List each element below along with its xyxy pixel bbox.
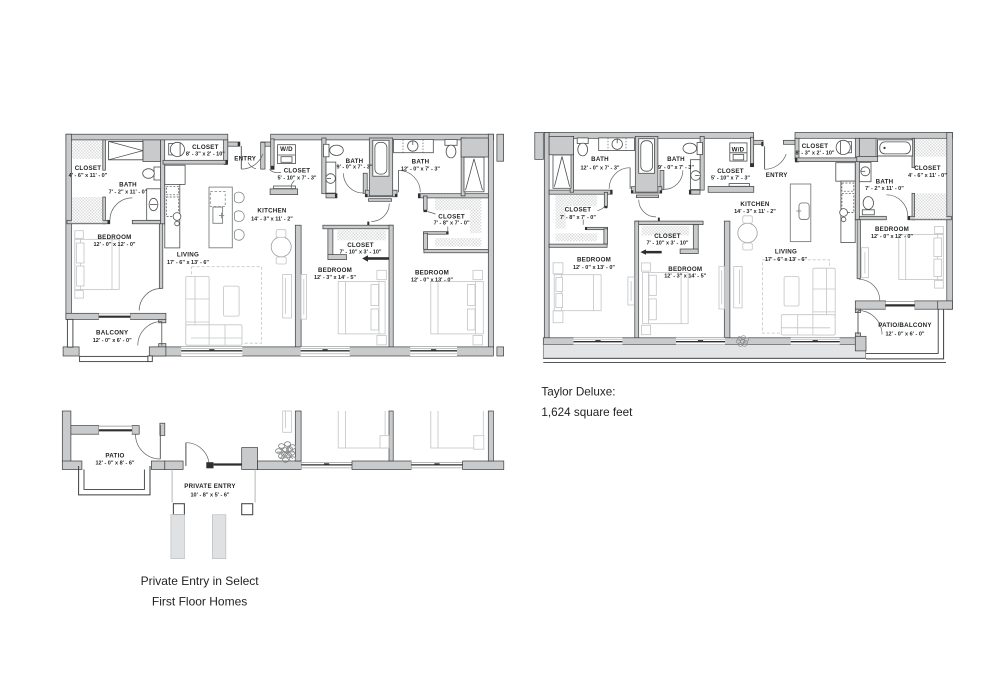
svg-text:BEDROOM: BEDROOM	[415, 269, 449, 276]
svg-text:KITCHEN: KITCHEN	[257, 208, 287, 215]
svg-text:BEDROOM: BEDROOM	[97, 234, 131, 241]
svg-text:PATIO: PATIO	[105, 453, 124, 460]
svg-text:8' - 3" x 2' - 10": 8' - 3" x 2' - 10"	[186, 152, 225, 158]
svg-text:7' - 8" x 7' - 0": 7' - 8" x 7' - 0"	[560, 215, 596, 221]
svg-text:1,624 square feet: 1,624 square feet	[541, 406, 633, 419]
svg-text:CLOSET: CLOSET	[192, 144, 219, 151]
svg-text:4' - 6" x 11' - 0": 4' - 6" x 11' - 0"	[908, 173, 947, 179]
svg-text:12' - 0" x 12' - 0": 12' - 0" x 12' - 0"	[93, 242, 135, 248]
svg-text:BALCONY: BALCONY	[96, 330, 129, 337]
svg-text:CLOSET: CLOSET	[654, 233, 681, 240]
svg-text:12' - 0" x 12' - 0": 12' - 0" x 12' - 0"	[871, 234, 913, 240]
svg-text:12' - 3" x 14' - 5": 12' - 3" x 14' - 5"	[664, 274, 706, 280]
svg-text:Private Entry in Select: Private Entry in Select	[141, 574, 260, 588]
svg-text:12' - 0" x 6' - 0": 12' - 0" x 6' - 0"	[885, 332, 924, 338]
svg-text:BATH: BATH	[876, 179, 894, 186]
svg-text:7' - 2" x 11' - 0": 7' - 2" x 11' - 0"	[865, 186, 904, 192]
svg-text:CLOSET: CLOSET	[284, 168, 311, 175]
svg-text:5' - 10" x 7' - 3": 5' - 10" x 7' - 3"	[711, 176, 750, 182]
svg-text:5' - 10" x 7' - 3": 5' - 10" x 7' - 3"	[277, 175, 316, 181]
svg-text:First Floor Homes: First Floor Homes	[152, 595, 247, 609]
svg-text:CLOSET: CLOSET	[565, 207, 592, 214]
svg-text:BATH: BATH	[119, 182, 137, 189]
svg-text:BEDROOM: BEDROOM	[668, 266, 702, 273]
svg-text:PATIO/BALCONY: PATIO/BALCONY	[878, 322, 932, 329]
svg-text:14' - 3" x 11' - 2": 14' - 3" x 11' - 2"	[734, 209, 776, 215]
svg-text:7' - 8" x 7' - 0": 7' - 8" x 7' - 0"	[434, 220, 470, 226]
svg-text:7' - 10" x 3' - 10": 7' - 10" x 3' - 10"	[339, 249, 381, 255]
svg-text:BEDROOM: BEDROOM	[318, 267, 352, 274]
svg-text:CLOSET: CLOSET	[75, 165, 102, 172]
svg-text:CLOSET: CLOSET	[347, 242, 374, 249]
svg-text:9' - 0" x 7' - 3": 9' - 0" x 7' - 3"	[658, 165, 694, 171]
svg-text:17' - 6" x 13' - 6": 17' - 6" x 13' - 6"	[167, 260, 209, 266]
svg-text:12' - 0" x 13' - 0": 12' - 0" x 13' - 0"	[573, 265, 615, 271]
svg-text:BATH: BATH	[412, 159, 430, 166]
svg-text:BATH: BATH	[667, 156, 685, 163]
svg-text:7' - 2" x 11' - 0": 7' - 2" x 11' - 0"	[109, 189, 148, 195]
svg-text:BATH: BATH	[591, 156, 609, 163]
svg-text:8' - 3" x 2' - 10": 8' - 3" x 2' - 10"	[795, 150, 834, 156]
svg-text:LIVING: LIVING	[775, 248, 797, 255]
svg-text:PRIVATE ENTRY: PRIVATE ENTRY	[184, 483, 236, 490]
svg-text:12' - 3" x 14' - 5": 12' - 3" x 14' - 5"	[314, 275, 356, 281]
svg-text:CLOSET: CLOSET	[802, 143, 829, 150]
svg-text:ENTRY: ENTRY	[766, 172, 789, 179]
svg-text:Taylor Deluxe:: Taylor Deluxe:	[541, 386, 615, 399]
svg-text:W/D: W/D	[280, 146, 293, 153]
svg-text:10' - 8" x 5' - 6": 10' - 8" x 5' - 6"	[190, 492, 229, 498]
svg-text:12' - 0" x 6' - 0": 12' - 0" x 6' - 0"	[93, 338, 132, 344]
svg-text:BEDROOM: BEDROOM	[577, 256, 611, 263]
svg-text:12' - 0" x 7' - 3": 12' - 0" x 7' - 3"	[580, 166, 619, 172]
svg-text:14' - 3" x 11' - 2": 14' - 3" x 11' - 2"	[251, 216, 293, 222]
svg-text:BEDROOM: BEDROOM	[875, 226, 909, 233]
svg-text:W/D: W/D	[732, 147, 745, 154]
svg-text:CLOSET: CLOSET	[717, 168, 744, 175]
svg-text:12' - 0" x 7' - 3": 12' - 0" x 7' - 3"	[401, 167, 440, 173]
svg-text:17' - 6" x 13' - 6": 17' - 6" x 13' - 6"	[765, 257, 807, 263]
svg-text:KITCHEN: KITCHEN	[740, 201, 770, 208]
svg-text:7' - 10" x 3' - 10": 7' - 10" x 3' - 10"	[646, 240, 688, 246]
svg-text:12' - 0" x 8' - 6": 12' - 0" x 8' - 6"	[95, 461, 134, 467]
svg-text:LIVING: LIVING	[177, 252, 199, 259]
svg-text:4' - 6" x 11' - 0": 4' - 6" x 11' - 0"	[69, 173, 108, 179]
svg-text:9' - 0" x 7' - 3": 9' - 0" x 7' - 3"	[337, 165, 373, 171]
svg-text:ENTRY: ENTRY	[234, 156, 257, 163]
svg-text:12' - 0" x 13' - 0": 12' - 0" x 13' - 0"	[411, 277, 453, 283]
svg-text:CLOSET: CLOSET	[914, 165, 941, 172]
